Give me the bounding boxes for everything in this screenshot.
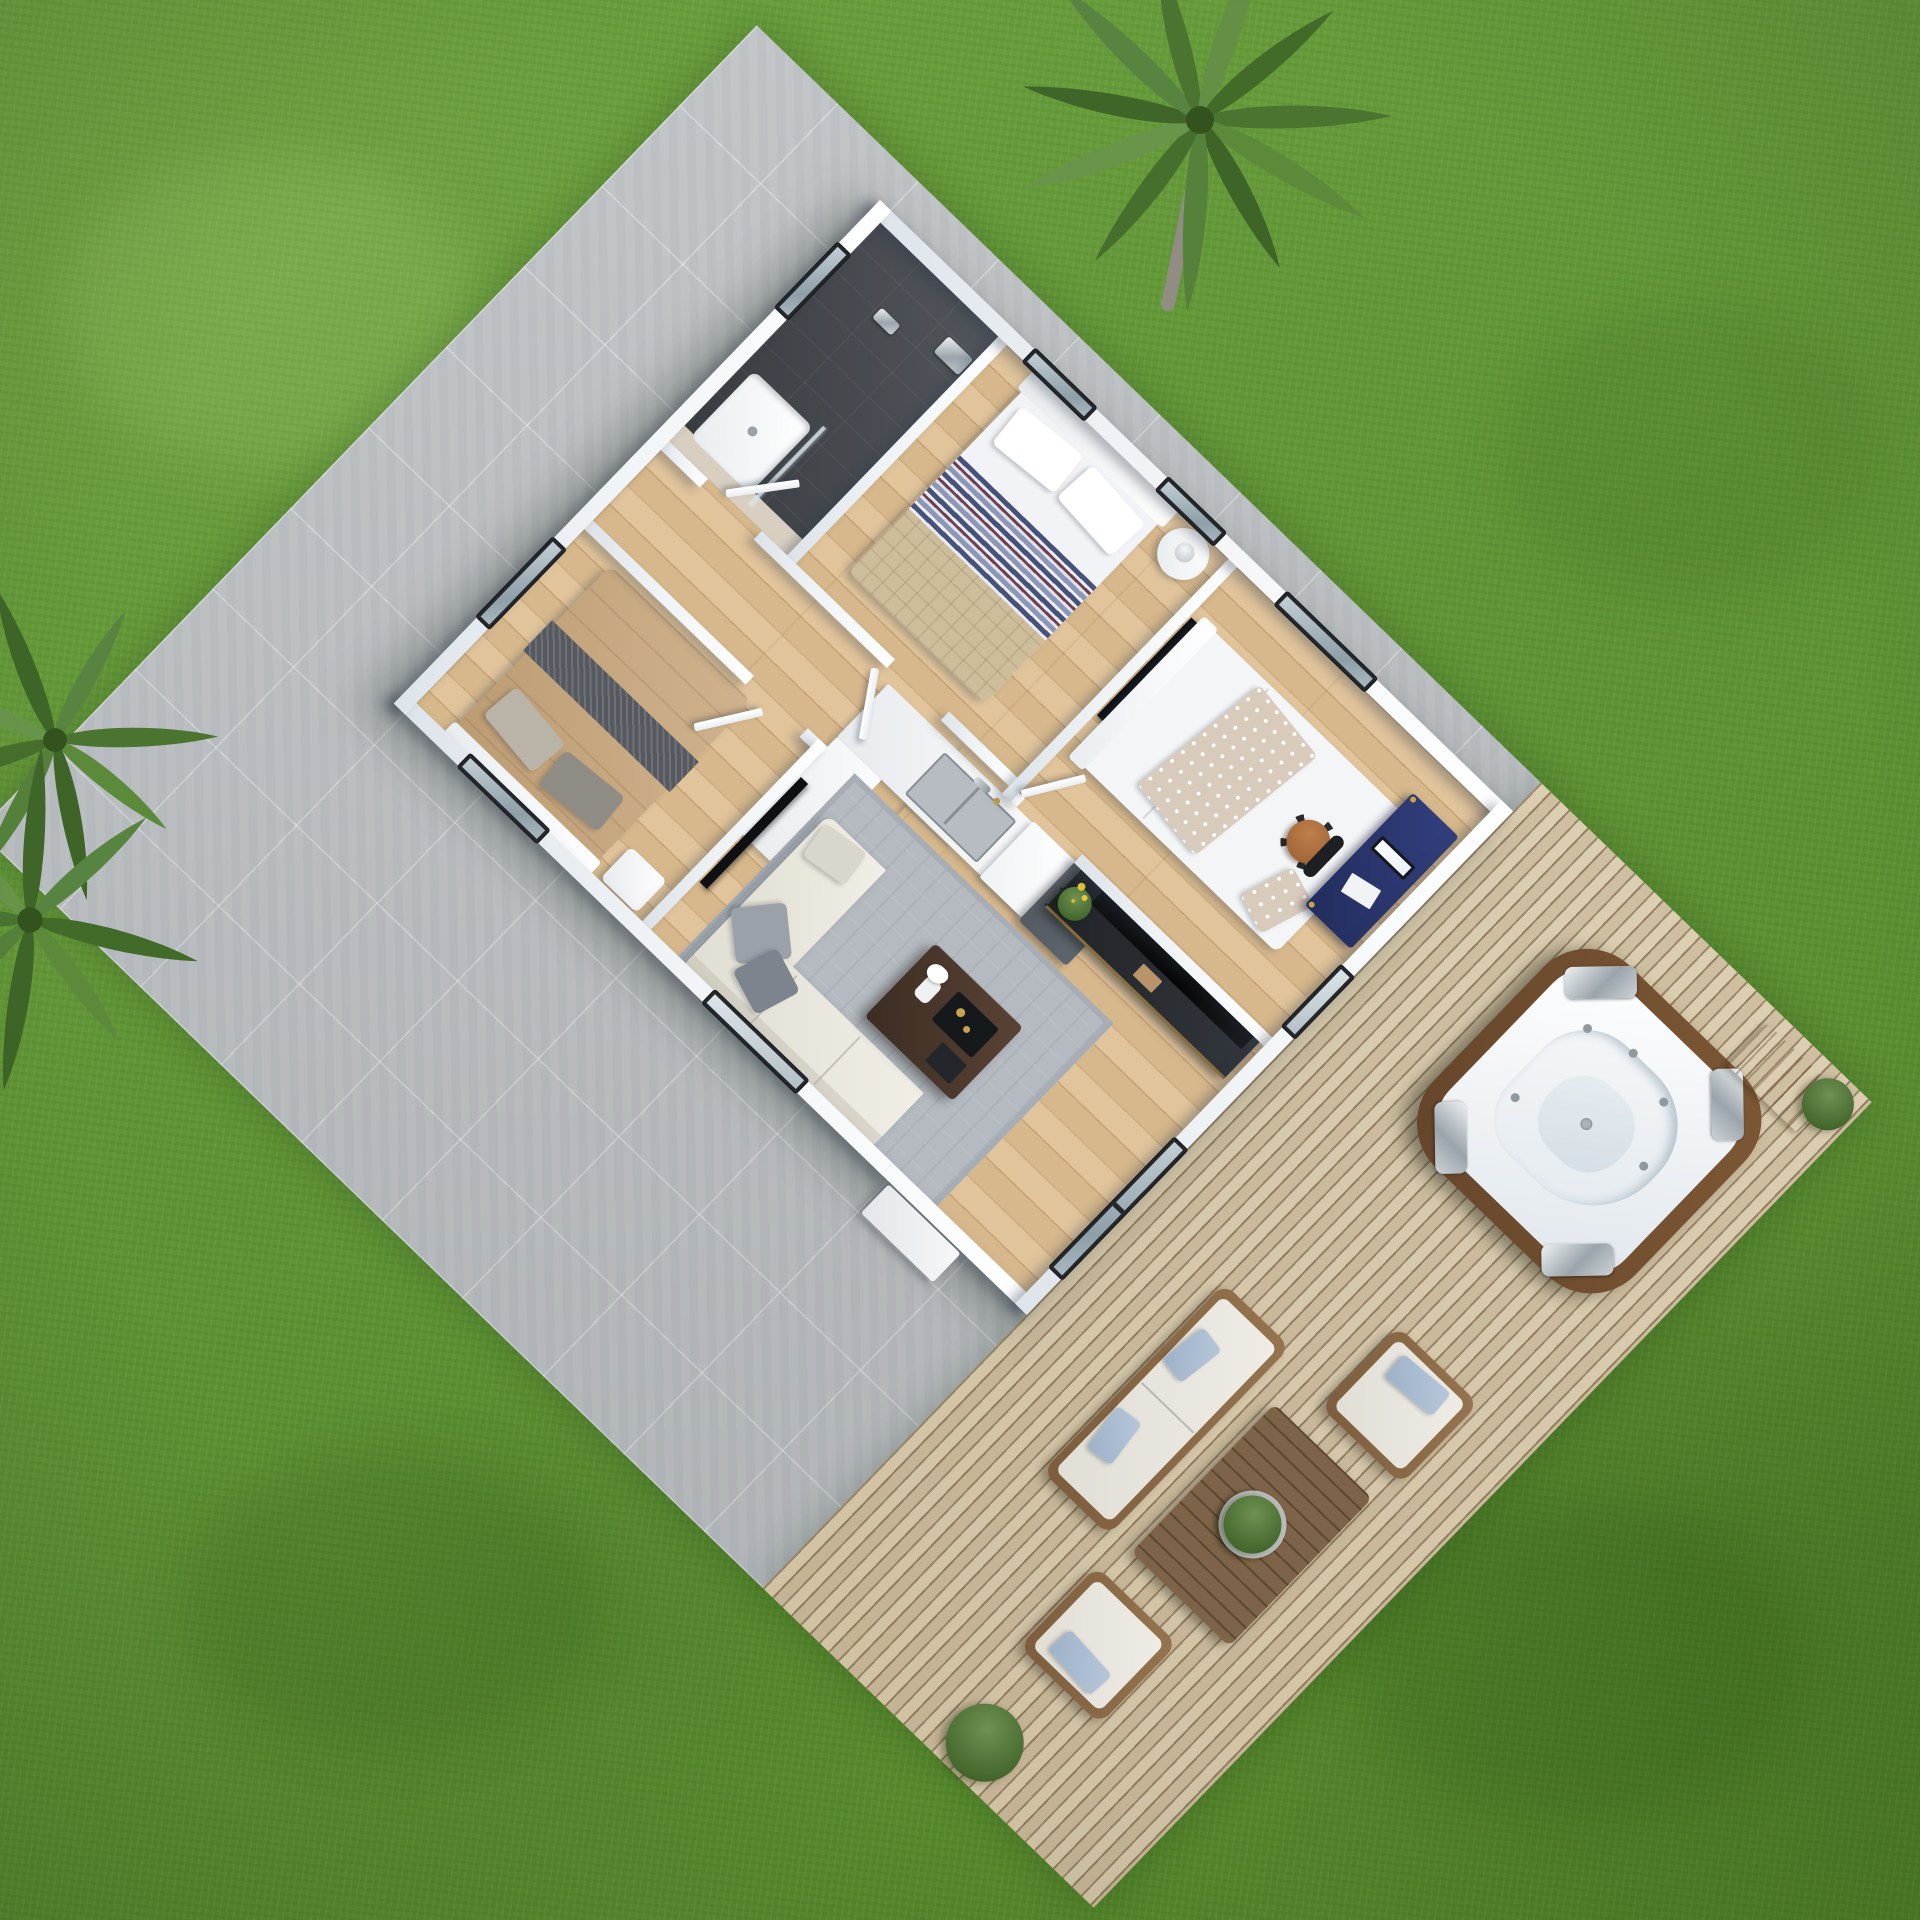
hot-tub	[1391, 923, 1787, 1319]
render-canvas	[0, 0, 1920, 1920]
desk-papers	[1341, 873, 1381, 910]
palm-tree-top-right	[1000, 0, 1400, 320]
palm-fronds	[0, 747, 200, 1093]
shower-control	[872, 307, 900, 335]
monitor-screen	[1374, 840, 1411, 876]
outdoor-armchair-south	[1019, 1566, 1177, 1724]
palm-tree-left-lower	[0, 740, 210, 1100]
hot-tub-headrest	[1711, 1068, 1744, 1141]
desk-leg-brass	[1307, 900, 1315, 908]
grass-patch	[180, 1450, 600, 1750]
hot-tub-headrest	[1434, 1101, 1467, 1174]
grass-patch	[1500, 300, 1880, 600]
hot-tub-headrest	[1565, 966, 1638, 999]
outdoor-armchair-north	[1320, 1326, 1478, 1484]
desk-leg-brass	[1409, 795, 1417, 803]
table-planter-greenery	[1211, 1483, 1293, 1565]
palm-fronds	[1017, 0, 1392, 313]
hot-tub-headrest	[1541, 1243, 1614, 1276]
flower-plant	[1051, 880, 1099, 928]
throw-runner-gray	[523, 620, 699, 792]
monitor	[1370, 835, 1416, 880]
potted-plant-bottom	[930, 1688, 1040, 1798]
